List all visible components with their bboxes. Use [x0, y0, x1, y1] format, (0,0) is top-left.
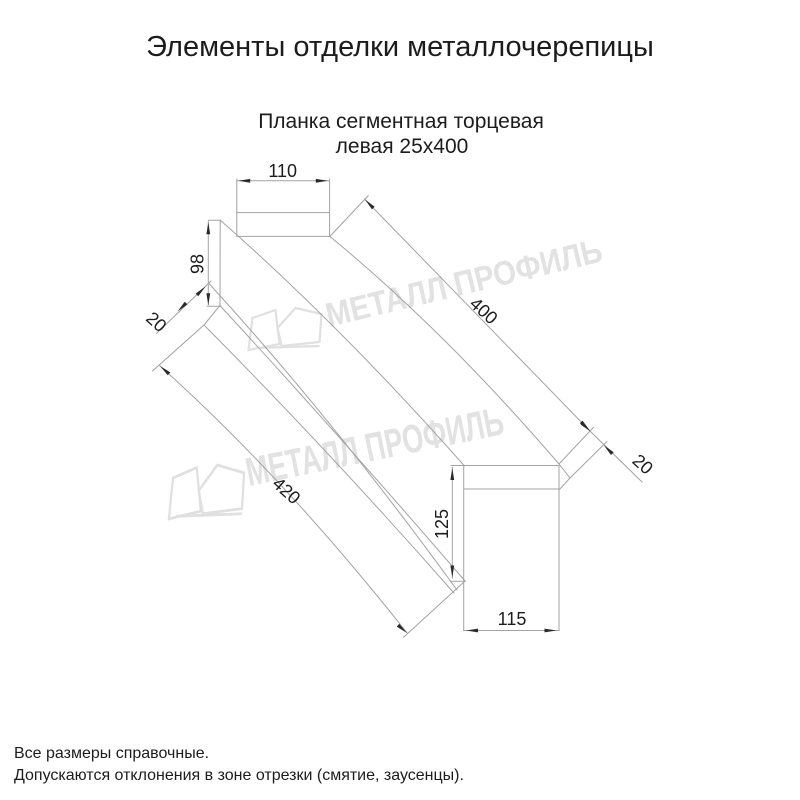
svg-text:Все размеры справочные.: Все размеры справочные. — [14, 745, 209, 762]
svg-text:МЕТАЛЛ ПРОФИЛЬ: МЕТАЛЛ ПРОФИЛЬ — [322, 232, 606, 335]
svg-text:125: 125 — [432, 509, 452, 539]
svg-text:110: 110 — [268, 161, 297, 181]
svg-text:20: 20 — [629, 450, 657, 478]
svg-text:20: 20 — [142, 308, 170, 336]
svg-text:115: 115 — [498, 609, 527, 629]
svg-text:левая 25х400: левая 25х400 — [336, 135, 469, 158]
svg-text:Допускаются отклонения в зоне: Допускаются отклонения в зоне отрезки (с… — [14, 767, 464, 784]
svg-text:Элементы отделки металлочерепи: Элементы отделки металлочерепицы — [146, 31, 654, 63]
svg-text:98: 98 — [188, 254, 208, 274]
svg-text:Планка сегментная торцевая: Планка сегментная торцевая — [258, 110, 544, 133]
